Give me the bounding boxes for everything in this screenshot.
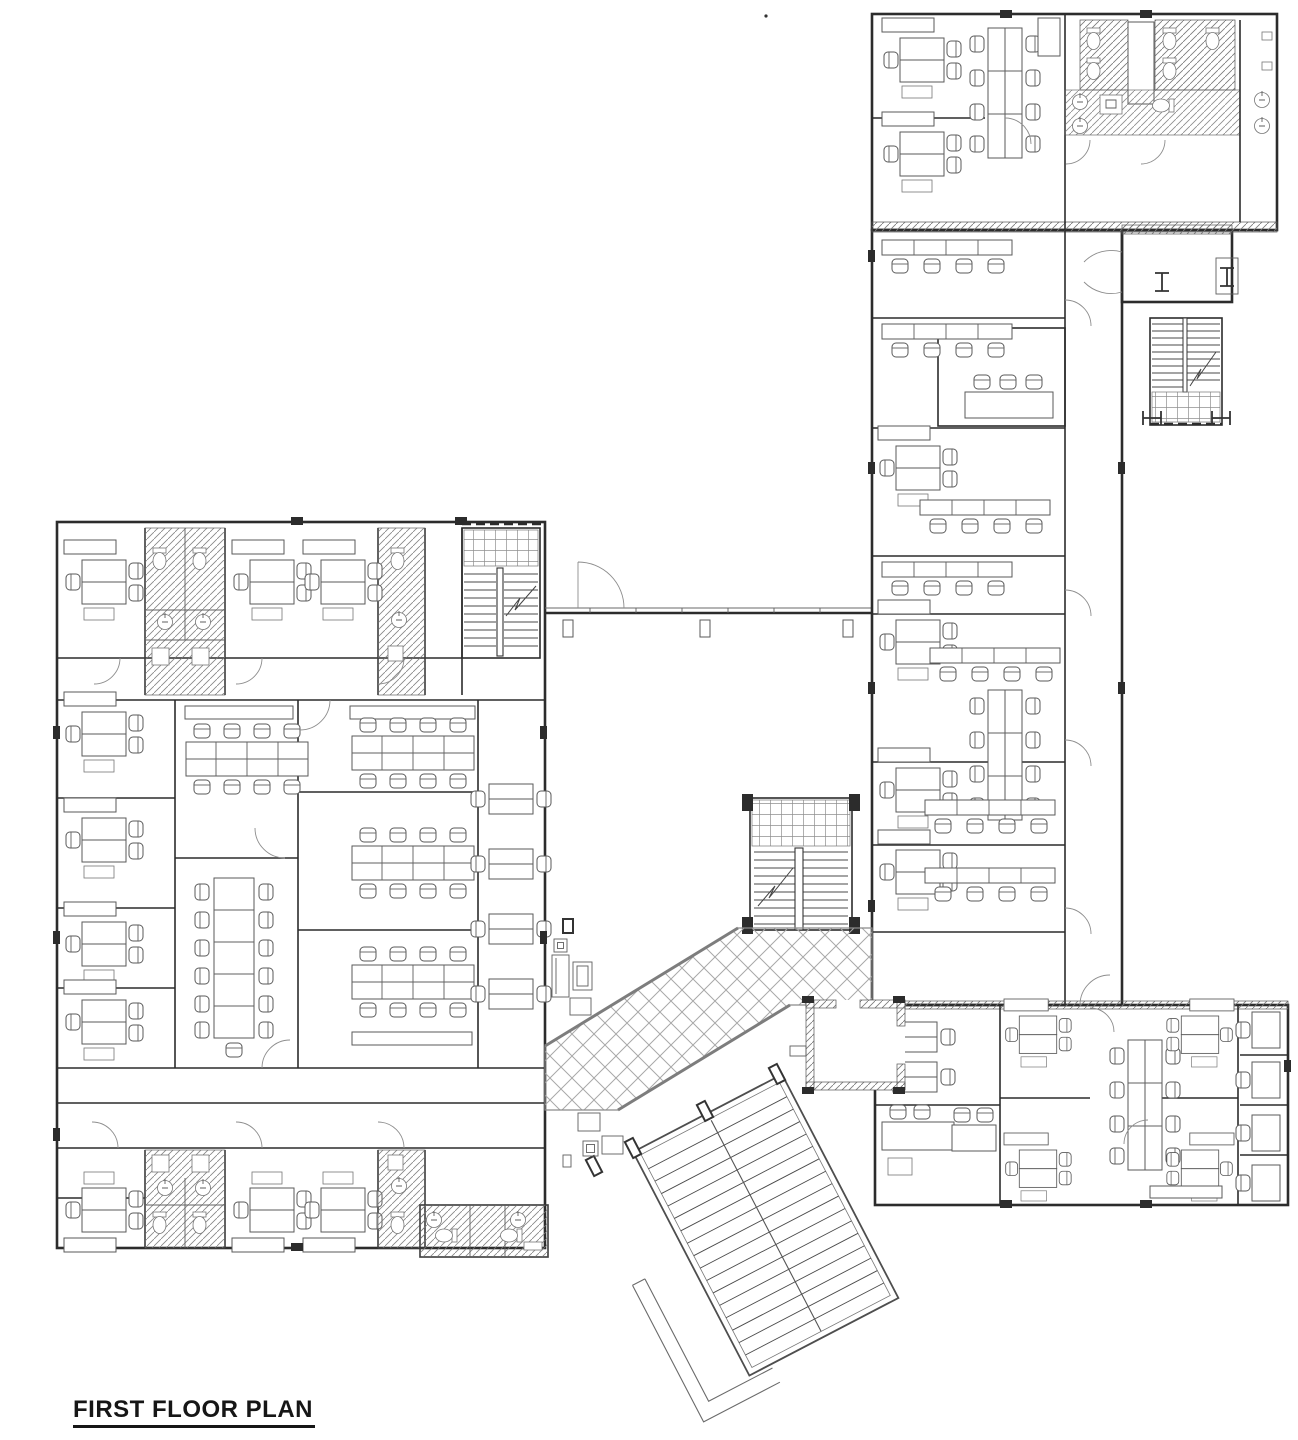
stair-core-west [462, 528, 540, 658]
toilet-core-northwest [145, 528, 225, 695]
toilet-core-north [1065, 20, 1272, 222]
sheet-mark [764, 14, 767, 17]
north-offices [872, 14, 1065, 230]
floor-plan-drawing [0, 0, 1298, 1440]
conference-room [195, 878, 290, 1068]
toilet-core-south-small [378, 1150, 425, 1248]
vestibule [790, 996, 905, 1094]
toilet-extension-south [420, 1205, 548, 1257]
west-wing [53, 517, 551, 1257]
east-offices [872, 230, 1091, 1005]
southeast-wing [875, 975, 1291, 1208]
north-wing [868, 10, 1277, 1005]
floor-plan-sheet: FIRST FLOOR PLAN [0, 0, 1298, 1440]
plan-title: FIRST FLOOR PLAN [73, 1396, 315, 1428]
entrance-ramp [578, 1064, 908, 1422]
east-perimeter-desks [1236, 1012, 1280, 1201]
training-rooms [300, 700, 475, 1045]
toilet-core-southwest [145, 1150, 225, 1248]
stair-core-central [742, 794, 860, 934]
stair-core-east [1084, 250, 1238, 425]
meeting-room [185, 706, 308, 858]
site-walkway-connector [545, 562, 872, 637]
